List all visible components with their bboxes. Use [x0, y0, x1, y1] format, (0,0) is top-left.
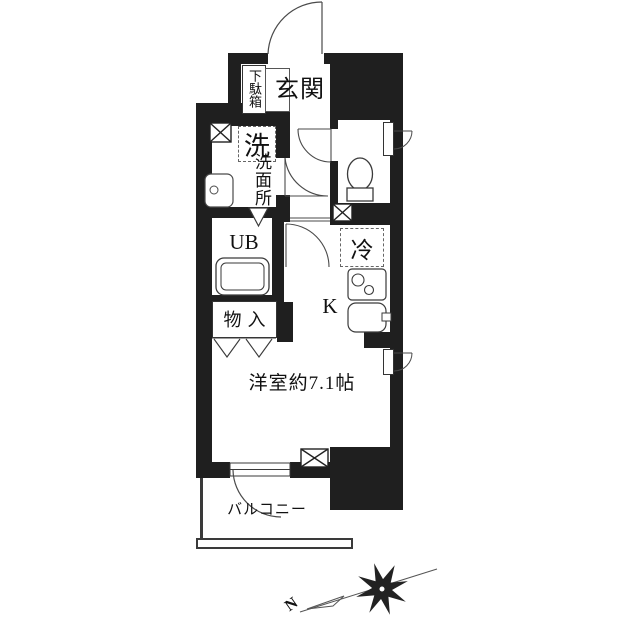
balcony-label: バルコニー: [204, 498, 330, 518]
toilet-icon: [347, 158, 373, 201]
closet-door-icon: [212, 338, 276, 357]
floorplan-canvas: 洗 冷 玄関 下駄箱 洗面所 UB 物入 K 洋室約7.1帖 バルコニー N: [0, 0, 640, 640]
western-room-label: 洋室約7.1帖: [212, 368, 392, 394]
kitchen-sink-icon: [348, 303, 391, 332]
kitchen-label: K: [318, 294, 342, 318]
entrance-label: 玄関: [272, 72, 328, 100]
pipe-space-icon-bottom: [301, 449, 328, 467]
unit-bath-label: UB: [224, 230, 264, 254]
hall-threshold: [290, 218, 330, 221]
storage-label: 物入: [212, 306, 277, 332]
refrigerator-box: 冷: [340, 228, 384, 267]
bathtub-icon: [216, 258, 269, 295]
stove-icon: [348, 269, 386, 300]
kitchen-door-icon: [286, 224, 329, 267]
room-window-icon: [394, 353, 412, 371]
compass-rose-icon: [300, 563, 437, 615]
shoe-cabinet-label: 下駄箱: [247, 69, 261, 108]
washroom-door-icon: [285, 158, 328, 196]
pipe-space-icon-washroom: [210, 123, 231, 142]
pipe-space-icon-hall: [333, 204, 352, 221]
balcony-threshold: [230, 463, 290, 476]
ub-door-icon: [249, 208, 268, 226]
washroom-label: 洗面所: [249, 153, 274, 207]
fridge-label: 冷: [351, 231, 374, 265]
toilet-door-icon: [298, 129, 331, 162]
entrance-door-icon: [268, 2, 322, 54]
toilet-window-icon: [394, 131, 412, 149]
washbasin-icon: [205, 174, 233, 207]
